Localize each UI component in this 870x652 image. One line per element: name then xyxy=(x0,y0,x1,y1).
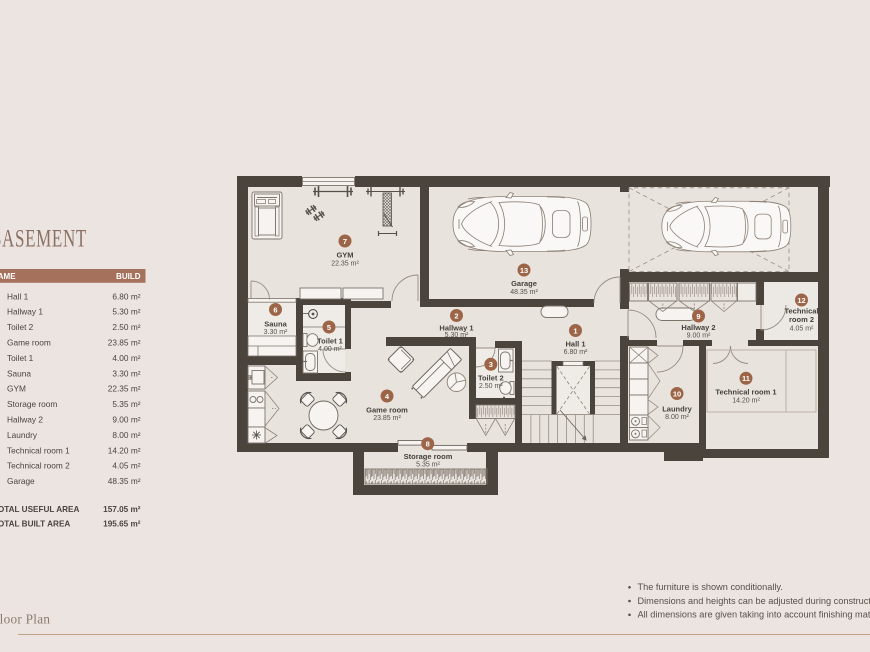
svg-text:8.00 m²: 8.00 m² xyxy=(665,414,689,421)
svg-text:10: 10 xyxy=(673,389,681,398)
svg-text:Hallway 1: Hallway 1 xyxy=(7,307,43,317)
svg-text:2.50 m²: 2.50 m² xyxy=(112,322,140,332)
svg-text:Garage: Garage xyxy=(7,476,35,486)
svg-text:Technical room 1: Technical room 1 xyxy=(7,445,70,455)
svg-text:Laundry: Laundry xyxy=(7,430,38,440)
svg-text:GYM: GYM xyxy=(7,384,26,394)
svg-text:3: 3 xyxy=(489,360,493,369)
svg-text:The furniture is shown conditi: The furniture is shown conditionally. xyxy=(638,582,783,592)
svg-text:room 2: room 2 xyxy=(789,315,814,324)
svg-text:TOTAL BUILT AREA: TOTAL BUILT AREA xyxy=(0,519,70,528)
svg-text:13: 13 xyxy=(520,266,528,275)
svg-text:4.05 m²: 4.05 m² xyxy=(112,461,140,471)
svg-text:Sauna: Sauna xyxy=(264,320,287,329)
svg-text:9.00 m²: 9.00 m² xyxy=(687,333,711,340)
svg-text:Game room: Game room xyxy=(366,406,408,415)
svg-text:Dimensions and heights can be: Dimensions and heights can be adjusted d… xyxy=(638,596,870,606)
svg-text:Toilet 1: Toilet 1 xyxy=(317,337,343,346)
svg-text:6: 6 xyxy=(273,305,277,314)
svg-text:11: 11 xyxy=(742,374,750,383)
svg-text:Hall 1: Hall 1 xyxy=(565,340,585,349)
svg-text:NAME: NAME xyxy=(0,272,16,281)
svg-text:Technical room 2: Technical room 2 xyxy=(7,461,70,471)
svg-text:Floor Plan: Floor Plan xyxy=(0,612,50,627)
svg-text:22.35 m²: 22.35 m² xyxy=(331,261,359,268)
svg-text:3.30 m²: 3.30 m² xyxy=(112,368,140,378)
svg-text:GYM: GYM xyxy=(336,251,353,260)
svg-text:5.30 m²: 5.30 m² xyxy=(445,332,469,339)
svg-text:7: 7 xyxy=(343,237,347,246)
svg-text:Hallway 2: Hallway 2 xyxy=(681,323,715,332)
svg-text:9.00 m²: 9.00 m² xyxy=(112,415,140,425)
svg-text:4.05 m²: 4.05 m² xyxy=(790,326,814,333)
svg-text:23.85 m²: 23.85 m² xyxy=(108,338,141,348)
svg-text:3.30 m²: 3.30 m² xyxy=(264,329,288,336)
svg-text:157.05 m²: 157.05 m² xyxy=(103,505,141,514)
svg-text:BUILD: BUILD xyxy=(116,272,141,281)
svg-text:Hall 1: Hall 1 xyxy=(7,291,29,301)
svg-text:14.20 m²: 14.20 m² xyxy=(732,398,760,405)
svg-text:Hallway 2: Hallway 2 xyxy=(7,415,43,425)
svg-text:5.30 m²: 5.30 m² xyxy=(112,307,140,317)
svg-text:Toilet 1: Toilet 1 xyxy=(7,353,34,363)
svg-text:9: 9 xyxy=(696,312,700,321)
svg-text:5: 5 xyxy=(327,323,331,332)
svg-text:48.35 m²: 48.35 m² xyxy=(510,289,538,296)
svg-text:5.35 m²: 5.35 m² xyxy=(416,462,440,469)
svg-text:8.00 m²: 8.00 m² xyxy=(112,430,140,440)
svg-text:Garage: Garage xyxy=(511,279,537,288)
svg-text:Toilet 2: Toilet 2 xyxy=(478,373,504,382)
svg-text:Toilet 2: Toilet 2 xyxy=(7,322,34,332)
svg-text:1: 1 xyxy=(573,326,577,335)
svg-text:48.35 m²: 48.35 m² xyxy=(108,476,141,486)
svg-text:BASEMENT: BASEMENT xyxy=(0,224,87,252)
svg-text:Technical room 1: Technical room 1 xyxy=(715,388,776,397)
svg-text:195.65 m²: 195.65 m² xyxy=(103,519,141,528)
svg-text:6.80 m²: 6.80 m² xyxy=(112,291,140,301)
svg-text:Sauna: Sauna xyxy=(7,368,31,378)
svg-text:TOTAL USEFUL AREA: TOTAL USEFUL AREA xyxy=(0,505,80,514)
svg-text:2.50 m²: 2.50 m² xyxy=(479,383,503,390)
svg-text:6.80 m²: 6.80 m² xyxy=(564,349,588,356)
svg-text:14.20 m²: 14.20 m² xyxy=(108,445,141,455)
svg-text:23.85 m²: 23.85 m² xyxy=(373,415,401,422)
svg-text:8: 8 xyxy=(426,440,430,449)
svg-text:12: 12 xyxy=(797,296,805,305)
svg-text:5.35 m²: 5.35 m² xyxy=(112,399,140,409)
svg-text:Game room: Game room xyxy=(7,338,51,348)
svg-text:2: 2 xyxy=(454,311,458,320)
svg-text:Laundry: Laundry xyxy=(662,405,692,414)
svg-text:4.00 m²: 4.00 m² xyxy=(112,353,140,363)
svg-text:Storage room: Storage room xyxy=(404,452,453,461)
svg-text:22.35 m²: 22.35 m² xyxy=(108,384,141,394)
svg-text:4.00 m²: 4.00 m² xyxy=(318,346,342,353)
svg-text:Storage room: Storage room xyxy=(7,399,57,409)
svg-text:All dimensions are given takin: All dimensions are given taking into acc… xyxy=(638,610,870,620)
